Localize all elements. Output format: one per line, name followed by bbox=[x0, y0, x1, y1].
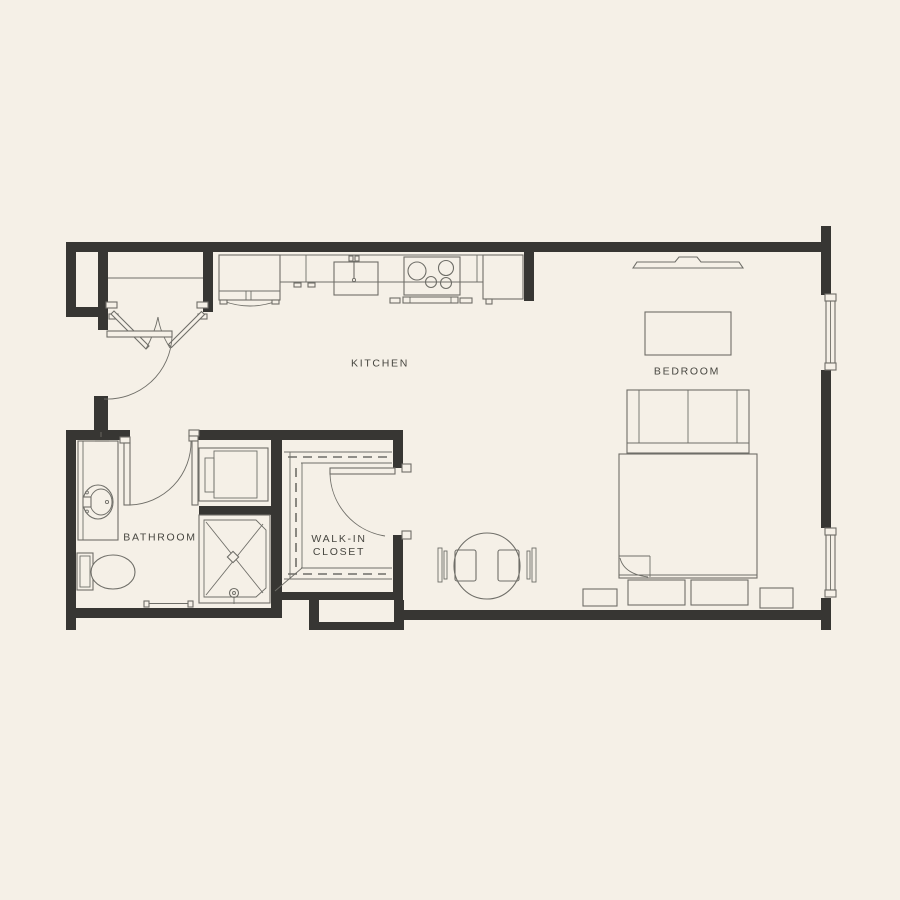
washer-control-panel bbox=[205, 458, 214, 492]
refrigerator-front-curve bbox=[223, 301, 277, 306]
nightstand-left bbox=[583, 589, 617, 606]
nightstand-right bbox=[760, 588, 793, 608]
wall-bottom-left bbox=[66, 608, 282, 618]
window-upper bbox=[825, 294, 836, 370]
window-cap bbox=[825, 363, 836, 370]
sink-basin bbox=[334, 262, 378, 295]
refrigerator-body bbox=[219, 255, 280, 300]
bifold-door-leaf bbox=[169, 312, 205, 348]
sink-faucet bbox=[83, 497, 91, 507]
end-cabinet bbox=[483, 255, 523, 299]
chair-back bbox=[527, 551, 530, 579]
entry-door-leaf bbox=[107, 331, 172, 337]
foot-bench bbox=[628, 580, 685, 605]
door-jamb-cap bbox=[402, 464, 411, 472]
wall-top bbox=[66, 242, 831, 252]
bed bbox=[619, 390, 757, 605]
vanity bbox=[78, 441, 118, 540]
window-lower bbox=[825, 528, 836, 597]
wall-utility-top bbox=[193, 430, 403, 440]
wall-utility-divider bbox=[199, 506, 271, 515]
shower bbox=[199, 515, 270, 604]
closet-door-swing bbox=[330, 474, 385, 536]
chair-seat bbox=[455, 550, 476, 581]
window-cap bbox=[825, 294, 836, 301]
vanity-counter bbox=[78, 441, 118, 540]
kitchen-sink bbox=[334, 256, 378, 295]
bar-foot bbox=[144, 601, 149, 607]
toilet bbox=[77, 553, 135, 590]
cabinet-handle bbox=[294, 283, 301, 287]
walk-in-closet-label-line1: WALK-IN bbox=[311, 533, 366, 546]
chair-seat bbox=[498, 550, 519, 581]
wall-right-upper bbox=[821, 226, 831, 295]
door-jamb-cap bbox=[120, 437, 130, 443]
door-jamb-cap bbox=[106, 302, 117, 308]
faucet-handle bbox=[349, 256, 353, 261]
wall-closet-right-lower bbox=[393, 535, 403, 600]
faucet-handle bbox=[355, 256, 359, 261]
chair-back bbox=[444, 551, 447, 579]
door-jamb-cap bbox=[189, 436, 198, 441]
entry-door-swing bbox=[104, 337, 172, 399]
bar-foot bbox=[188, 601, 193, 607]
washer-body bbox=[199, 448, 268, 501]
floor-plan: KITCHEN BEDROOM BATHROOM WALK-IN CLOSET bbox=[0, 0, 900, 900]
window-cap bbox=[825, 590, 836, 597]
bathroom-label: BATHROOM bbox=[123, 532, 197, 545]
wall-left-lower bbox=[66, 430, 76, 630]
door-stop-block bbox=[98, 437, 104, 440]
closet-door-leaf bbox=[330, 468, 395, 474]
cabinet-handle bbox=[308, 283, 315, 287]
wall-bump-bottom bbox=[309, 622, 404, 630]
wall-mounted-tv bbox=[633, 257, 743, 268]
wall-bottom-right bbox=[400, 610, 831, 620]
wall-hall-stub bbox=[94, 396, 108, 432]
cabinet-handle bbox=[486, 299, 492, 304]
floor-plan-drawing bbox=[0, 0, 900, 900]
refrigerator-foot bbox=[272, 300, 279, 304]
dining-table bbox=[454, 533, 520, 599]
wall-right-mid bbox=[821, 370, 831, 528]
kitchen-counter bbox=[280, 255, 523, 304]
washer-lid bbox=[214, 451, 257, 498]
oven-door-front bbox=[403, 297, 458, 303]
kitchen-label: KITCHEN bbox=[351, 358, 409, 371]
laundry-unit bbox=[189, 436, 268, 505]
bath-mat-bar bbox=[144, 601, 193, 607]
mattress bbox=[619, 454, 757, 578]
chair-back bbox=[532, 548, 536, 582]
entry-closet-bifold-doors bbox=[106, 302, 208, 349]
refrigerator-foot bbox=[220, 300, 227, 304]
chair-back bbox=[438, 548, 442, 582]
burner bbox=[439, 261, 454, 276]
wall-left-upper bbox=[66, 242, 76, 317]
refrigerator bbox=[219, 255, 280, 306]
bifold-door-leaf bbox=[111, 311, 149, 349]
utility-partition bbox=[192, 441, 198, 505]
dining-set bbox=[438, 533, 536, 599]
bathroom-door bbox=[120, 430, 199, 505]
shower-valve-dot bbox=[233, 592, 236, 595]
burner bbox=[408, 262, 426, 280]
bathroom-door-leaf bbox=[124, 443, 130, 505]
wall-closet-bottom bbox=[282, 592, 403, 600]
door-jamb-cap bbox=[402, 531, 411, 539]
wall-right-lower bbox=[821, 598, 831, 630]
wall-kitchen-stub bbox=[524, 243, 534, 301]
wall-chase-inner bbox=[98, 252, 108, 330]
dishwasher-handle bbox=[460, 298, 472, 303]
faucet-handle-dot bbox=[86, 491, 89, 494]
faucet-handle-dot bbox=[86, 510, 89, 513]
dresser bbox=[645, 312, 731, 355]
wall-closet-right-upper bbox=[393, 430, 403, 468]
burner bbox=[441, 278, 452, 289]
door-jamb-cap bbox=[189, 430, 199, 436]
toilet-bowl bbox=[91, 555, 135, 589]
dishwasher-handle bbox=[390, 298, 400, 303]
walk-in-closet-label-line2: CLOSET bbox=[311, 546, 366, 559]
door-jamb-cap bbox=[197, 302, 208, 308]
sink-drain bbox=[105, 500, 108, 503]
cooktop bbox=[403, 257, 460, 303]
walk-in-closet-label: WALK-IN CLOSET bbox=[311, 533, 366, 559]
closet-door bbox=[330, 464, 411, 539]
bedroom-label: BEDROOM bbox=[654, 366, 720, 379]
window-cap bbox=[825, 528, 836, 535]
shower-valve bbox=[230, 589, 239, 598]
foot-bench bbox=[691, 580, 748, 605]
bathroom-door-swing bbox=[130, 441, 191, 505]
